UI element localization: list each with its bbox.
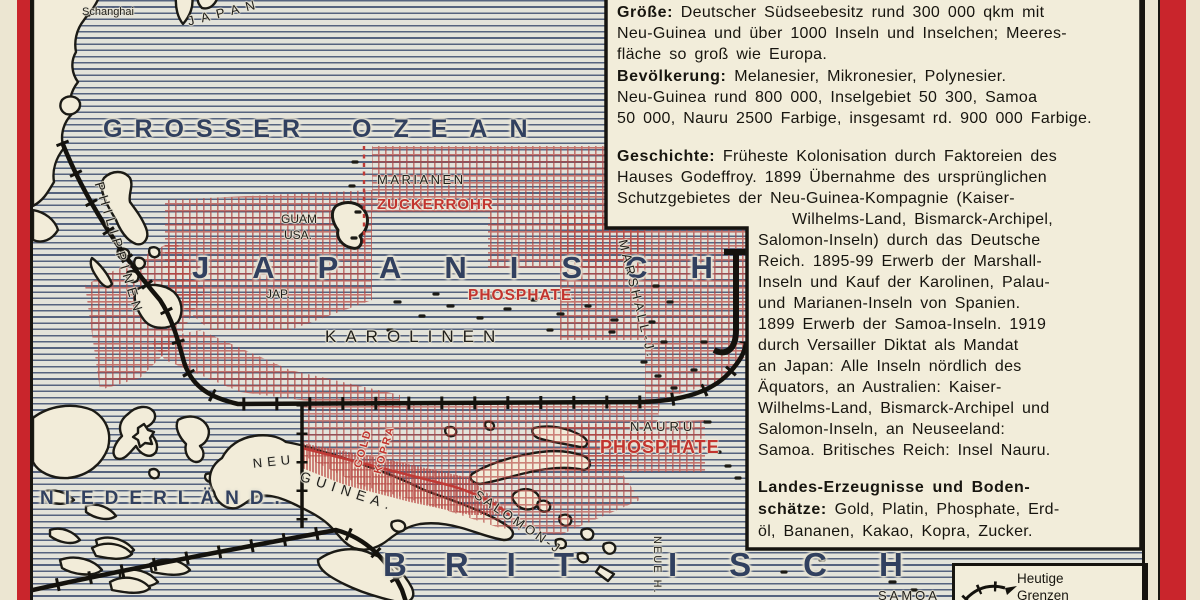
island-label-samoa: SAMOA bbox=[878, 588, 940, 600]
region-label-isch: ISCH bbox=[668, 546, 955, 584]
region-label-neue-hebriden: NEUE H. bbox=[651, 536, 663, 595]
panel-section-landes: Landes-Erzeugnisse und Boden- schätze: G… bbox=[758, 477, 1138, 543]
panel-section-geschichte-indent: Wilhelms-Land, Bismarck-Archipel, Salomo… bbox=[758, 209, 1138, 461]
frame-red-bar-right bbox=[1160, 0, 1186, 600]
frame-black-line-right bbox=[1142, 0, 1145, 600]
borneo-island bbox=[33, 406, 109, 478]
region-label-marianen: MARIANEN bbox=[377, 172, 466, 187]
ocean-label-ozean: OZEAN bbox=[352, 115, 550, 144]
panel-section-bevoelkerung: Bevölkerung: Melanesier, Mikronesier, Po… bbox=[617, 66, 1137, 129]
region-label-karolinen: KAROLINEN bbox=[325, 327, 504, 347]
taiwan-island bbox=[60, 96, 80, 114]
city-label-schanghai: Schanghai bbox=[82, 6, 134, 18]
legend-label: Heutige Grenzen bbox=[1017, 570, 1069, 600]
atlas-page: Schanghai JAPAN GROSSER OZEAN PHILIPPINE… bbox=[0, 0, 1200, 600]
island-label-guam: GUAM bbox=[281, 212, 317, 226]
legend-box: Heutige Grenzen bbox=[952, 563, 1148, 600]
panel-section-groesse: Größe: Deutscher Südseebesitz rund 300 0… bbox=[617, 2, 1137, 65]
region-label-niederlaend: NIEDERLÄND. bbox=[40, 488, 291, 510]
mandate-label-japanisch: JAPANISCH bbox=[192, 250, 756, 286]
product-label-phosphate-south: PHOSPHATE bbox=[600, 437, 720, 458]
label-jap-abbrev: JAP. bbox=[266, 287, 290, 301]
panel-section-geschichte-top: Geschichte: Früheste Kolonisation durch … bbox=[617, 146, 1137, 209]
boundary-line-icon bbox=[961, 574, 1019, 600]
frame-black-line-left bbox=[30, 0, 33, 600]
product-label-zuckerrohr: ZUCKERROHR bbox=[377, 196, 494, 213]
region-label-brit: BRIT bbox=[383, 546, 612, 584]
island-label-nauru: NAURU bbox=[630, 419, 696, 434]
frame-red-bar-left bbox=[17, 0, 30, 600]
island-label-usa: USA. bbox=[284, 228, 312, 242]
product-label-phosphate-north: PHOSPHATE bbox=[468, 287, 572, 305]
ocean-label-grosser: GROSSER bbox=[103, 115, 312, 144]
